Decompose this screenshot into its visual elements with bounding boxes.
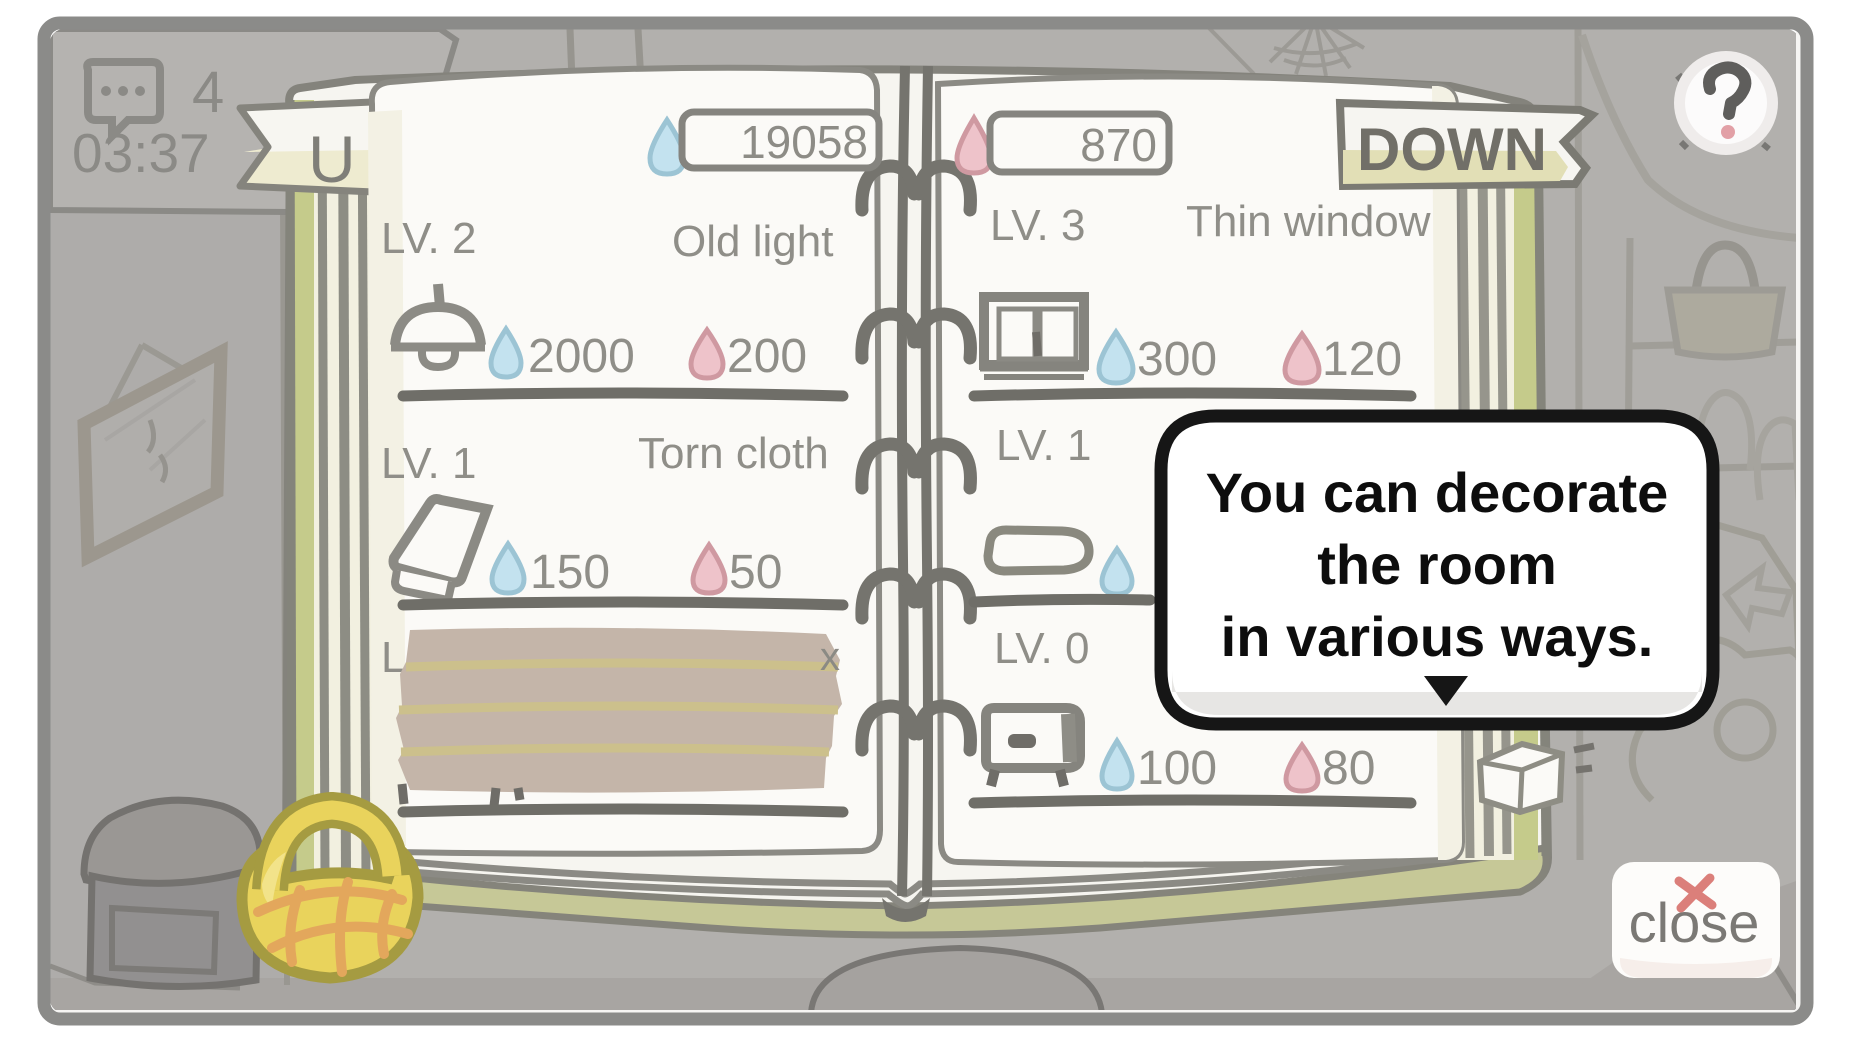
svg-text:You can decorate: You can decorate	[1206, 461, 1669, 524]
svg-text:the room: the room	[1317, 533, 1557, 596]
svg-text:in various ways.: in various ways.	[1221, 605, 1654, 668]
